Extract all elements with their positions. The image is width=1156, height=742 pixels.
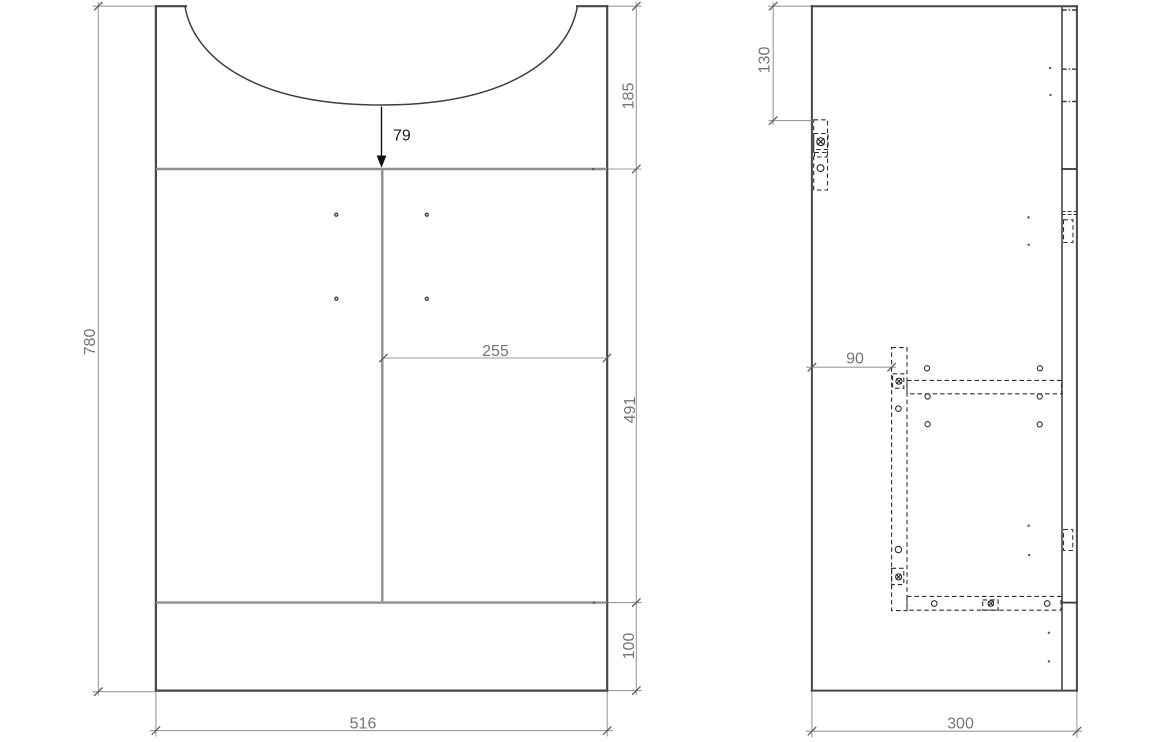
svg-text:300: 300 xyxy=(947,715,974,732)
svg-text:255: 255 xyxy=(482,343,509,360)
svg-text:185: 185 xyxy=(620,83,637,110)
svg-text:516: 516 xyxy=(350,715,377,732)
svg-text:100: 100 xyxy=(621,633,638,660)
svg-text:130: 130 xyxy=(757,47,774,74)
svg-text:79: 79 xyxy=(393,128,411,145)
svg-text:90: 90 xyxy=(846,350,864,367)
svg-text:491: 491 xyxy=(622,397,639,424)
svg-text:780: 780 xyxy=(82,329,99,356)
